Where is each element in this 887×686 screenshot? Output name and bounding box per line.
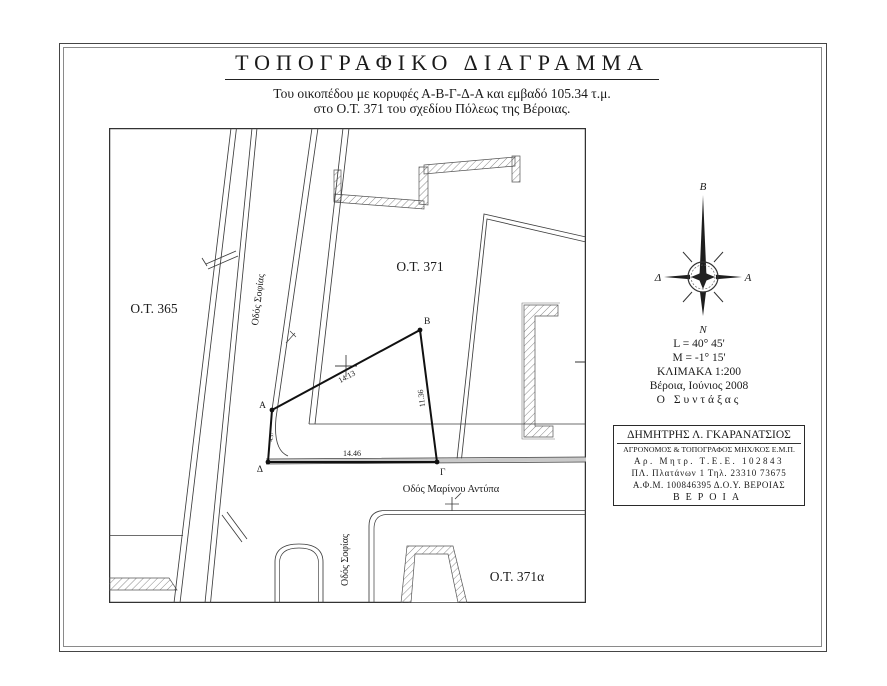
building-band-b	[424, 157, 515, 174]
compass-west-arm	[664, 275, 690, 279]
vertex-label-b: B	[424, 317, 430, 327]
street-label-antypa: Οδός Μαρίνου Αντύπα	[403, 484, 500, 495]
street-label-sofias-upper: Οδός Σοφίας	[250, 273, 267, 326]
block-label-371a: Ο.Τ. 371α	[490, 569, 544, 584]
page-title: ΤΟΠΟΓΡΑΦΙΚΟ ΔΙΑΓΡΑΜΜΑ	[225, 50, 659, 80]
vertex-label-g: Γ	[440, 468, 446, 478]
arch-structure-inner	[280, 548, 319, 603]
road-west-edge	[174, 128, 237, 603]
pole-symbol	[445, 493, 461, 511]
street-label-sofias-lower: Οδός Σοφίας	[340, 534, 351, 586]
subtitle-line2: στο Ο.Τ. 371 του σχεδίου Πόλεως της Βέρο…	[59, 101, 825, 116]
place-date: Βέροια, Ιούνιος 2008	[613, 379, 785, 393]
building-band-a	[334, 194, 424, 209]
length-label-bg: 11.36	[416, 389, 427, 408]
length-label-ad: 4.37	[269, 432, 276, 442]
vertex-b-dot	[418, 328, 423, 333]
vertex-d-dot	[266, 460, 271, 465]
author-label: Ο Συντάξας	[613, 393, 785, 407]
building-bottom-left	[109, 578, 177, 590]
compass-label-west: Δ	[654, 272, 661, 284]
building-step-right	[512, 156, 520, 182]
length-label-dg: 14.46	[343, 449, 361, 458]
subtitle: Του οικοπέδου με κορυφές Α-Β-Γ-Δ-Α και ε…	[59, 86, 825, 116]
road-east-sidewalk	[276, 128, 319, 456]
compass-label-east: Α	[744, 272, 752, 284]
length-label-ab: 14.13	[337, 369, 357, 385]
building-c-shape	[524, 305, 558, 437]
compass-graphic	[664, 195, 742, 316]
meridian-value: M = -1° 15'	[613, 351, 785, 365]
vertex-a-dot	[270, 408, 275, 413]
vertex-g-dot	[435, 460, 440, 465]
block-label-365: Ο.Τ. 365	[130, 301, 178, 316]
street-south-edge	[369, 511, 586, 604]
header: ΤΟΠΟΓΡΑΦΙΚΟ ΔΙΑΓΡΑΜΜΑ	[59, 50, 825, 80]
stamp-profession: ΑΓΡΟΝΟΜΟΣ & ΤΟΠΟΓΡΑΦΟΣ ΜΗΧ/ΚΟΣ Ε.Μ.Π.	[614, 445, 804, 454]
compass-label-north: Β	[700, 181, 707, 193]
right-wall	[457, 214, 586, 459]
compass-label-south: Ν	[698, 324, 707, 336]
subtitle-line1: Του οικοπέδου με κορυφές Α-Β-Γ-Δ-Α και ε…	[59, 86, 825, 101]
vertex-label-a: A	[259, 401, 266, 411]
scale-value: ΚΛΙΜΑΚΑ 1:200	[613, 365, 785, 379]
arch-structure	[275, 544, 323, 603]
block-label-371: Ο.Τ. 371	[396, 259, 443, 274]
compass-east-arm	[716, 275, 742, 279]
compass-north-spike	[700, 195, 707, 277]
surveyor-stamp: ΔΗΜΗΤΡΗΣ Λ. ΓΚΑΡΑΝΑΤΣΙΟΣ ΑΓΡΟΝΟΜΟΣ & ΤΟΠ…	[613, 425, 805, 506]
survey-info: L = 40° 45' M = -1° 15' ΚΛΙΜΑΚΑ 1:200 Βέ…	[613, 337, 785, 407]
latitude-value: L = 40° 45'	[613, 337, 785, 351]
vertex-label-d: Δ	[257, 465, 263, 475]
parcel	[266, 328, 440, 465]
compass-south-spike	[700, 292, 706, 316]
hatched-buildings	[109, 156, 558, 603]
parcel-boundary	[268, 330, 437, 462]
stamp-registry: Αρ. Μητρ. Τ.Ε.Ε. 102843	[614, 456, 804, 466]
stamp-city: ΒΕΡΟΙΑ	[614, 492, 804, 503]
compass-rose: Β Ν Α Δ	[645, 175, 760, 340]
survey-map: Ο.Τ. 365 Ο.Τ. 371 Ο.Τ. 371α Οδός Σοφίας …	[109, 128, 586, 603]
gate-mark-lower	[222, 512, 247, 542]
stamp-tax-number: Α.Φ.Μ. 100846395 Δ.Ο.Υ. ΒΕΡΟΙΑΣ	[614, 480, 804, 490]
stamp-address: ΠΛ. Πλατάνων 1 Τηλ. 23310 73675	[614, 468, 804, 478]
road-east-edge	[272, 128, 312, 410]
stamp-name: ΔΗΜΗΤΡΗΣ Λ. ΓΚΑΡΑΝΑΤΣΙΟΣ	[617, 429, 801, 444]
road-west-sidewalk	[205, 128, 257, 603]
